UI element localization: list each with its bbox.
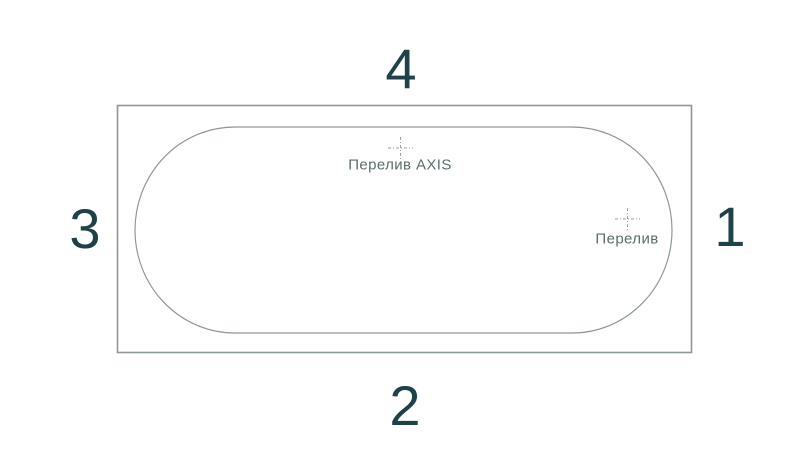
side-number-left: 3 (69, 201, 100, 257)
tub-outer-rim (118, 106, 692, 353)
side-number-right: 1 (714, 199, 745, 255)
side-number-bottom: 2 (389, 378, 420, 434)
overflow-label: Перелив (595, 231, 658, 248)
side-number-top: 4 (385, 41, 416, 97)
bathtub-top-view-diagram: 4 2 3 1 Перелив AXIS Перелив (0, 0, 800, 464)
center-mark-icon (615, 208, 640, 230)
overflow-axis-label: Перелив AXIS (348, 157, 452, 174)
